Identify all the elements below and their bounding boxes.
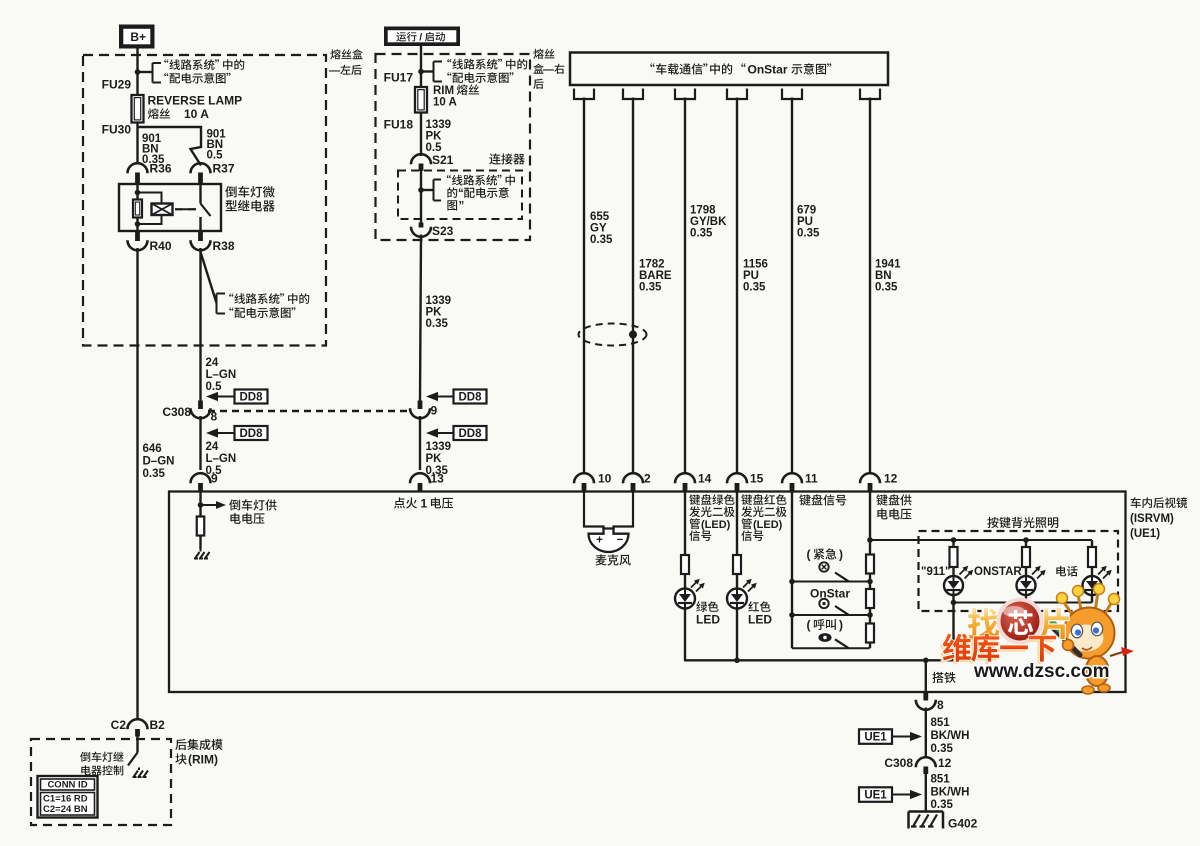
svg-text:0.5: 0.5 [206, 381, 223, 393]
svg-text:(ISRVM): (ISRVM) [1130, 513, 1174, 525]
svg-text:OnStar: OnStar [748, 63, 788, 77]
svg-text:9: 9 [431, 404, 438, 418]
svg-text:12: 12 [884, 472, 898, 486]
svg-text:ONSTAR: ONSTAR [974, 566, 1022, 578]
svg-text:646: 646 [143, 443, 162, 455]
svg-text:0.5: 0.5 [207, 150, 224, 162]
svg-text:www.dzsc.com: www.dzsc.com [973, 661, 1110, 682]
svg-text:0.35: 0.35 [143, 468, 166, 480]
svg-text:PK: PK [426, 307, 443, 319]
svg-text:679: 679 [797, 205, 816, 217]
svg-text:1339: 1339 [426, 295, 452, 307]
svg-text:PK: PK [426, 131, 443, 143]
svg-text:C308: C308 [884, 756, 913, 770]
svg-text:G402: G402 [948, 817, 978, 831]
svg-text:(: ( [807, 618, 811, 632]
svg-text:LED: LED [748, 613, 772, 627]
svg-text:GY/BK: GY/BK [690, 216, 727, 228]
svg-text:"911": "911" [921, 566, 950, 578]
svg-text:851: 851 [931, 774, 951, 786]
svg-text:DD8: DD8 [458, 392, 482, 404]
svg-text:24: 24 [206, 357, 219, 369]
svg-text:LED: LED [696, 613, 720, 627]
svg-text:—: — [329, 65, 340, 77]
svg-text:+: + [596, 535, 603, 547]
svg-text:OnStar: OnStar [810, 587, 850, 601]
svg-text:D–GN: D–GN [143, 456, 175, 468]
svg-text:0.35: 0.35 [875, 282, 898, 294]
svg-text:10 A: 10 A [433, 97, 457, 109]
svg-text:24: 24 [206, 441, 219, 453]
svg-text:FU17: FU17 [384, 71, 414, 85]
svg-text:BARE: BARE [639, 270, 672, 282]
svg-text:10 A: 10 A [184, 107, 209, 121]
svg-text:13: 13 [431, 472, 445, 486]
svg-text:DD8: DD8 [239, 428, 263, 440]
svg-text:BK/WH: BK/WH [931, 730, 970, 742]
svg-text:UE1: UE1 [864, 790, 887, 802]
svg-text:R40: R40 [150, 239, 172, 253]
svg-text:FU30: FU30 [102, 123, 132, 137]
svg-text:1: 1 [421, 497, 428, 511]
svg-text:UE1: UE1 [864, 732, 887, 744]
svg-text:BN: BN [875, 270, 892, 282]
svg-text:0.35: 0.35 [931, 799, 954, 811]
svg-text:”: ” [459, 201, 465, 213]
svg-text:1941: 1941 [875, 259, 901, 271]
svg-text:R38: R38 [213, 239, 235, 253]
svg-text:851: 851 [931, 717, 951, 729]
svg-text:C2: C2 [111, 718, 127, 732]
svg-text:C2=24 BN: C2=24 BN [43, 804, 88, 815]
svg-text:10: 10 [598, 472, 612, 486]
svg-text:BK/WH: BK/WH [931, 787, 970, 799]
svg-text:S23: S23 [432, 224, 454, 238]
svg-text:REVERSE LAMP: REVERSE LAMP [148, 94, 243, 108]
svg-text:1339: 1339 [426, 119, 452, 131]
svg-text:R37: R37 [213, 162, 235, 176]
svg-text:0.35: 0.35 [639, 282, 662, 294]
svg-text:/: / [419, 32, 422, 44]
svg-text:12: 12 [938, 756, 952, 770]
svg-text:14: 14 [698, 472, 712, 486]
svg-text:9: 9 [211, 472, 218, 486]
svg-text:(LED): (LED) [701, 519, 731, 531]
svg-text:S21: S21 [432, 153, 454, 167]
svg-text:C308: C308 [162, 405, 191, 419]
svg-text:): ) [839, 618, 843, 632]
svg-text:B+: B+ [130, 30, 146, 44]
svg-text:655: 655 [590, 211, 610, 223]
svg-text:): ) [839, 548, 843, 562]
svg-text:8: 8 [937, 698, 944, 712]
svg-text:PU: PU [797, 216, 813, 228]
svg-text:FU29: FU29 [102, 78, 132, 92]
svg-text:0.35: 0.35 [426, 318, 449, 330]
svg-text:0.35: 0.35 [590, 234, 613, 246]
svg-text:DD8: DD8 [239, 392, 263, 404]
svg-text:DD8: DD8 [458, 428, 482, 440]
svg-text:RIM: RIM [433, 85, 454, 97]
svg-text:15: 15 [750, 472, 764, 486]
svg-text:L–GN: L–GN [206, 453, 237, 465]
svg-text:0.35: 0.35 [743, 282, 766, 294]
svg-text:0.35: 0.35 [690, 228, 713, 240]
svg-text:PU: PU [743, 270, 759, 282]
svg-text:(: ( [807, 548, 811, 562]
svg-text:1156: 1156 [743, 259, 768, 271]
svg-text:(RIM): (RIM) [188, 753, 218, 767]
svg-text:R36: R36 [150, 162, 172, 176]
svg-text:L–GN: L–GN [206, 369, 237, 381]
svg-text:PK: PK [426, 453, 443, 465]
svg-text:0.35: 0.35 [931, 743, 954, 755]
svg-text:—: — [543, 64, 554, 76]
svg-text:1798: 1798 [690, 205, 716, 217]
svg-text:CONN ID: CONN ID [47, 780, 87, 791]
svg-text:GY: GY [590, 223, 607, 235]
svg-text:0.35: 0.35 [797, 228, 820, 240]
svg-text:C1=16 RD: C1=16 RD [43, 794, 88, 805]
svg-text:11: 11 [805, 472, 818, 486]
svg-text:“: “ [458, 188, 464, 200]
svg-text:1782: 1782 [639, 259, 665, 271]
svg-text:(LED): (LED) [753, 519, 783, 531]
svg-text:–: – [617, 534, 624, 546]
svg-text:(UE1): (UE1) [1130, 528, 1160, 540]
svg-text:FU18: FU18 [384, 118, 414, 132]
svg-text:B2: B2 [150, 718, 166, 732]
svg-text:2: 2 [644, 472, 651, 486]
svg-text:1339: 1339 [426, 441, 452, 453]
